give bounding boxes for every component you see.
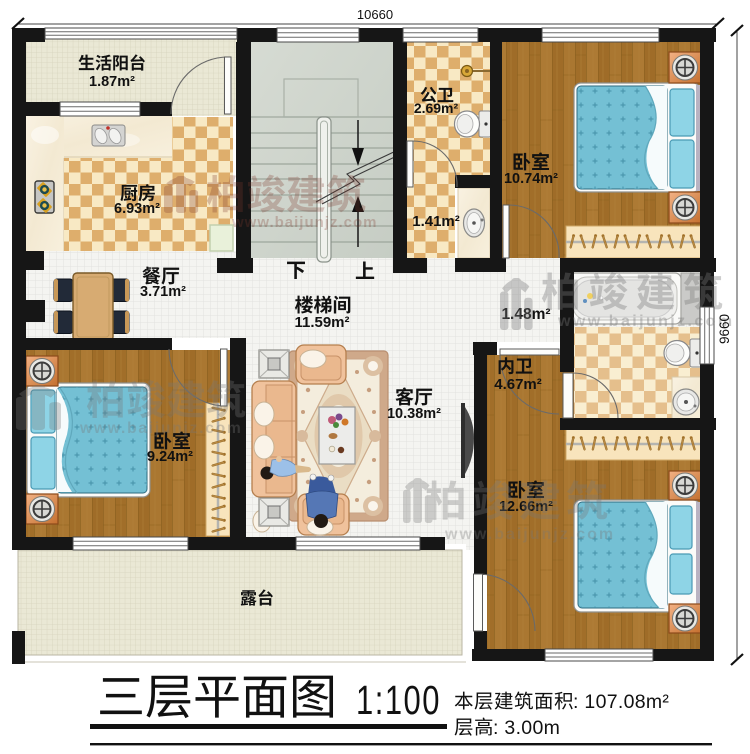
- svg-text:www.baijunjz.com: www.baijunjz.com: [557, 313, 735, 330]
- svg-text:www.baijunjz.com: www.baijunjz.com: [444, 526, 615, 543]
- svg-text:9660: 9660: [717, 314, 732, 344]
- svg-text:1.87m²: 1.87m²: [89, 74, 135, 90]
- svg-text:9.24m²: 9.24m²: [147, 449, 193, 465]
- svg-text:4.67m²: 4.67m²: [494, 376, 542, 393]
- svg-text:2.69m²: 2.69m²: [414, 100, 459, 116]
- svg-text:: 107.08m²: : 107.08m²: [573, 691, 669, 713]
- svg-text:www.baijunjz.com: www.baijunjz.com: [79, 420, 243, 437]
- svg-text:www.baijunjz.com: www.baijunjz.com: [231, 214, 377, 231]
- svg-text:3.71m²: 3.71m²: [140, 284, 186, 300]
- svg-text:6.93m²: 6.93m²: [114, 201, 160, 217]
- svg-text:1.41m²: 1.41m²: [412, 213, 460, 230]
- svg-text:10660: 10660: [357, 7, 393, 22]
- svg-text:11.59m²: 11.59m²: [294, 314, 349, 331]
- svg-text:10.38m²: 10.38m²: [387, 406, 441, 422]
- svg-text:: 3.00m: : 3.00m: [493, 717, 560, 739]
- svg-text:10.74m²: 10.74m²: [504, 171, 558, 187]
- svg-text:1:100: 1:100: [356, 677, 441, 723]
